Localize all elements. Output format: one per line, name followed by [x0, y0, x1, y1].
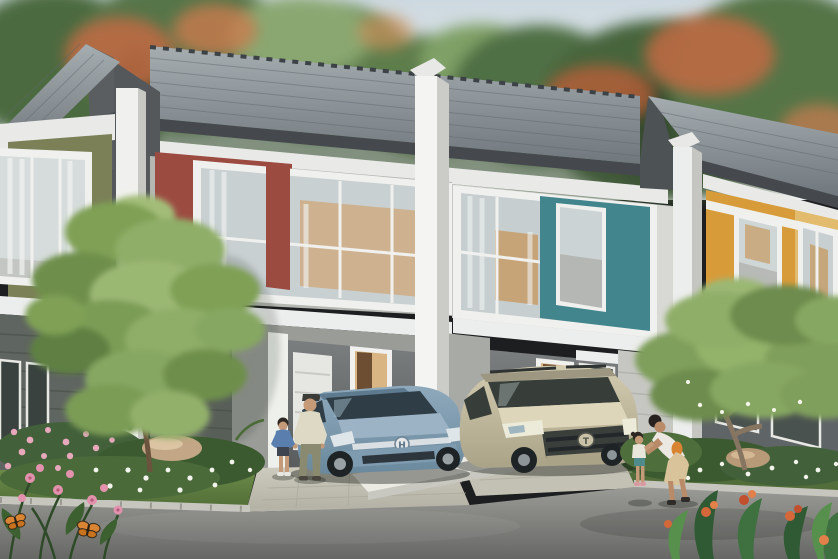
suv-badge-letter: T: [583, 437, 590, 447]
shoe-left: [277, 472, 284, 476]
teal-shorts: [634, 458, 645, 466]
accent-strip-in-window: [266, 162, 290, 290]
suv-rim-right: [607, 450, 617, 460]
leg-right: [641, 466, 645, 482]
shoe-left: [299, 476, 308, 481]
mpv-rim-left: [334, 458, 346, 470]
head: [655, 422, 666, 433]
warm-interior: [300, 200, 432, 298]
shoe-right: [640, 482, 646, 486]
mpv-rim-right: [443, 454, 454, 465]
head: [635, 436, 643, 444]
warm-interior-a: [745, 224, 770, 264]
inner-window-glass: [560, 207, 602, 260]
head: [304, 399, 317, 412]
townhouse-rendering: H: [0, 0, 838, 559]
scene-canvas: H: [0, 0, 838, 559]
white-top: [632, 444, 646, 458]
leg-left: [279, 456, 283, 472]
boulder-highlight: [147, 438, 183, 450]
shorts: [277, 447, 289, 456]
shoe-left: [667, 500, 676, 505]
shoe-right: [681, 497, 690, 502]
leg-right: [285, 456, 289, 472]
shoe-left: [634, 482, 640, 486]
suv-rim-left: [518, 454, 530, 466]
head: [279, 422, 288, 431]
road-sheen: [100, 508, 520, 544]
car-suv: T: [456, 366, 640, 476]
pigtail: [631, 432, 635, 436]
suv-headlight-right: [622, 418, 637, 435]
inner-window-spandrel: [560, 254, 602, 308]
shoe-right: [284, 472, 291, 476]
shoe-right: [312, 476, 321, 481]
roof-rail-right: [566, 366, 606, 367]
leg-left: [636, 466, 640, 482]
